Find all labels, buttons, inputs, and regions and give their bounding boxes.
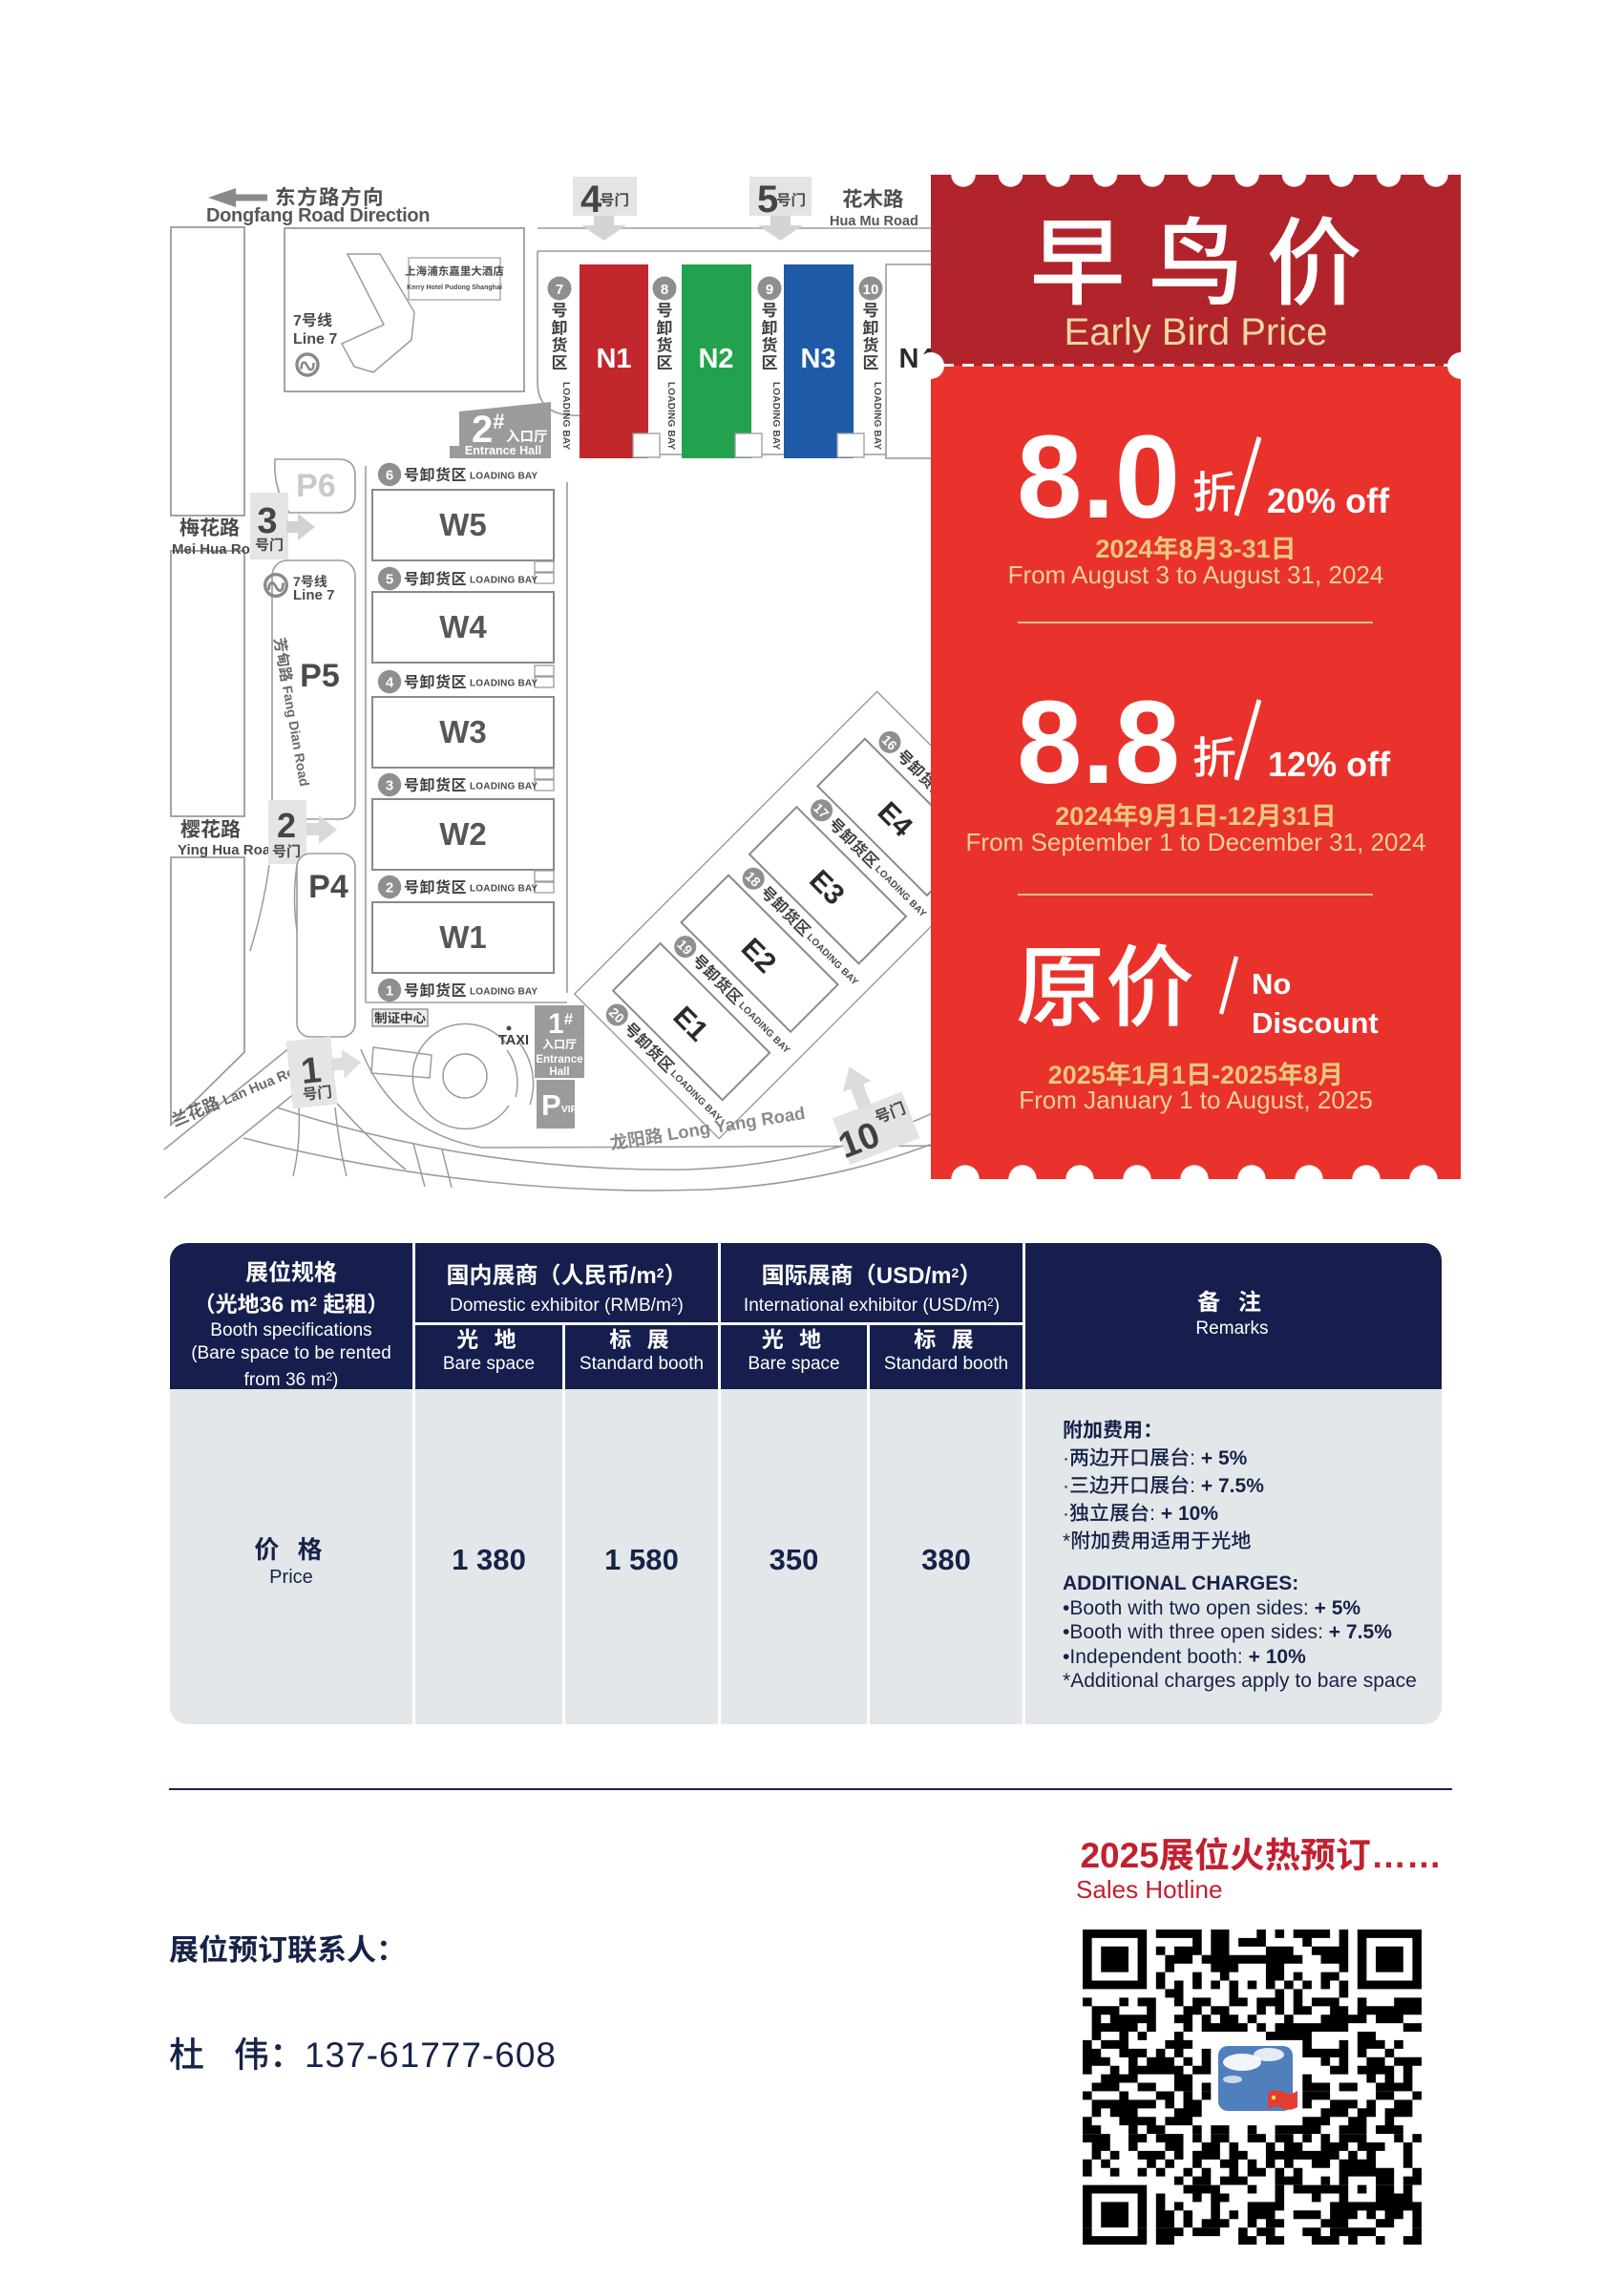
svg-text:LOADING BAY: LOADING BAY <box>770 382 781 450</box>
svg-text:LOADING BAY: LOADING BAY <box>560 382 571 450</box>
svg-text:LOADING BAY: LOADING BAY <box>470 679 538 689</box>
svg-text:N1: N1 <box>596 344 631 374</box>
svg-text:号卸货区: 号卸货区 <box>656 302 672 372</box>
svg-text:花木路: 花木路 <box>842 188 904 211</box>
svg-text:号门: 号门 <box>776 192 806 209</box>
svg-text:号卸货区: 号卸货区 <box>404 674 467 691</box>
svg-text:N2: N2 <box>698 344 733 374</box>
svg-text:5: 5 <box>386 572 393 588</box>
svg-text:号门: 号门 <box>600 192 629 209</box>
svg-text:N3: N3 <box>800 344 835 374</box>
svg-text:樱花路: 樱花路 <box>180 819 241 841</box>
svg-text:Dongfang Road Direction: Dongfang Road Direction <box>206 205 430 226</box>
svg-text:10: 10 <box>863 282 879 298</box>
svg-text:号卸货区: 号卸货区 <box>404 467 467 484</box>
svg-text:3: 3 <box>386 778 393 794</box>
svg-text:4: 4 <box>386 675 394 691</box>
svg-text:制证中心: 制证中心 <box>374 1011 427 1025</box>
svg-text:号卸货区: 号卸货区 <box>404 571 467 588</box>
svg-text:W1: W1 <box>439 919 487 955</box>
svg-text:Ying Hua Road: Ying Hua Road <box>178 842 279 858</box>
svg-text:W4: W4 <box>439 609 487 644</box>
svg-text:号卸货区: 号卸货区 <box>761 302 777 372</box>
svg-text:2: 2 <box>277 806 296 845</box>
svg-text:7号线: 7号线 <box>293 312 332 329</box>
svg-text:Line 7: Line 7 <box>293 587 334 603</box>
svg-text:号卸货区: 号卸货区 <box>551 302 567 372</box>
svg-text:8: 8 <box>661 282 668 298</box>
svg-text:P4: P4 <box>308 869 348 905</box>
svg-text:Hua Mu Road: Hua Mu Road <box>830 214 918 229</box>
svg-text:TAXI: TAXI <box>498 1033 529 1048</box>
svg-text:6: 6 <box>386 468 393 484</box>
svg-text:Entrance Hall: Entrance Hall <box>465 444 541 457</box>
svg-text:7: 7 <box>556 282 563 298</box>
svg-text:P6: P6 <box>296 468 336 504</box>
svg-text:梅花路: 梅花路 <box>179 517 240 539</box>
svg-text:号门: 号门 <box>255 538 284 554</box>
svg-text:号卸货区: 号卸货区 <box>404 879 467 896</box>
svg-text:2: 2 <box>386 880 393 896</box>
svg-text:LOADING BAY: LOADING BAY <box>470 782 538 792</box>
svg-text:3: 3 <box>257 501 277 541</box>
svg-text:号门: 号门 <box>272 844 301 860</box>
svg-text:P5: P5 <box>300 658 340 694</box>
svg-text:9: 9 <box>766 282 773 298</box>
svg-text:W3: W3 <box>439 714 487 749</box>
svg-text:入口厅: 入口厅 <box>542 1038 577 1051</box>
svg-text:入口厅: 入口厅 <box>506 429 548 445</box>
svg-text:LOADING BAY: LOADING BAY <box>665 382 676 450</box>
svg-text:号门: 号门 <box>302 1084 333 1104</box>
svg-text:号卸货区: 号卸货区 <box>404 777 467 794</box>
svg-text:LOADING BAY: LOADING BAY <box>470 576 538 586</box>
svg-text:LOADING BAY: LOADING BAY <box>470 987 538 998</box>
svg-text:Entrance: Entrance <box>536 1054 582 1065</box>
svg-text:上海浦东嘉里大酒店: 上海浦东嘉里大酒店 <box>405 265 504 278</box>
svg-text:号卸货区: 号卸货区 <box>404 982 467 1000</box>
svg-text:Line 7: Line 7 <box>293 331 337 348</box>
svg-text:LOADING BAY: LOADING BAY <box>872 382 882 450</box>
svg-text:1: 1 <box>386 983 393 1000</box>
svg-text:W2: W2 <box>439 816 487 852</box>
svg-text:Hall: Hall <box>549 1066 569 1078</box>
svg-text:LOADING BAY: LOADING BAY <box>470 884 538 895</box>
svg-text:LOADING BAY: LOADING BAY <box>470 472 538 482</box>
svg-text:W5: W5 <box>439 507 487 542</box>
svg-text:Kerry Hotel Pudong Shanghai: Kerry Hotel Pudong Shanghai <box>407 285 502 291</box>
svg-text:5: 5 <box>757 179 778 221</box>
svg-text:号卸货区: 号卸货区 <box>862 302 878 372</box>
